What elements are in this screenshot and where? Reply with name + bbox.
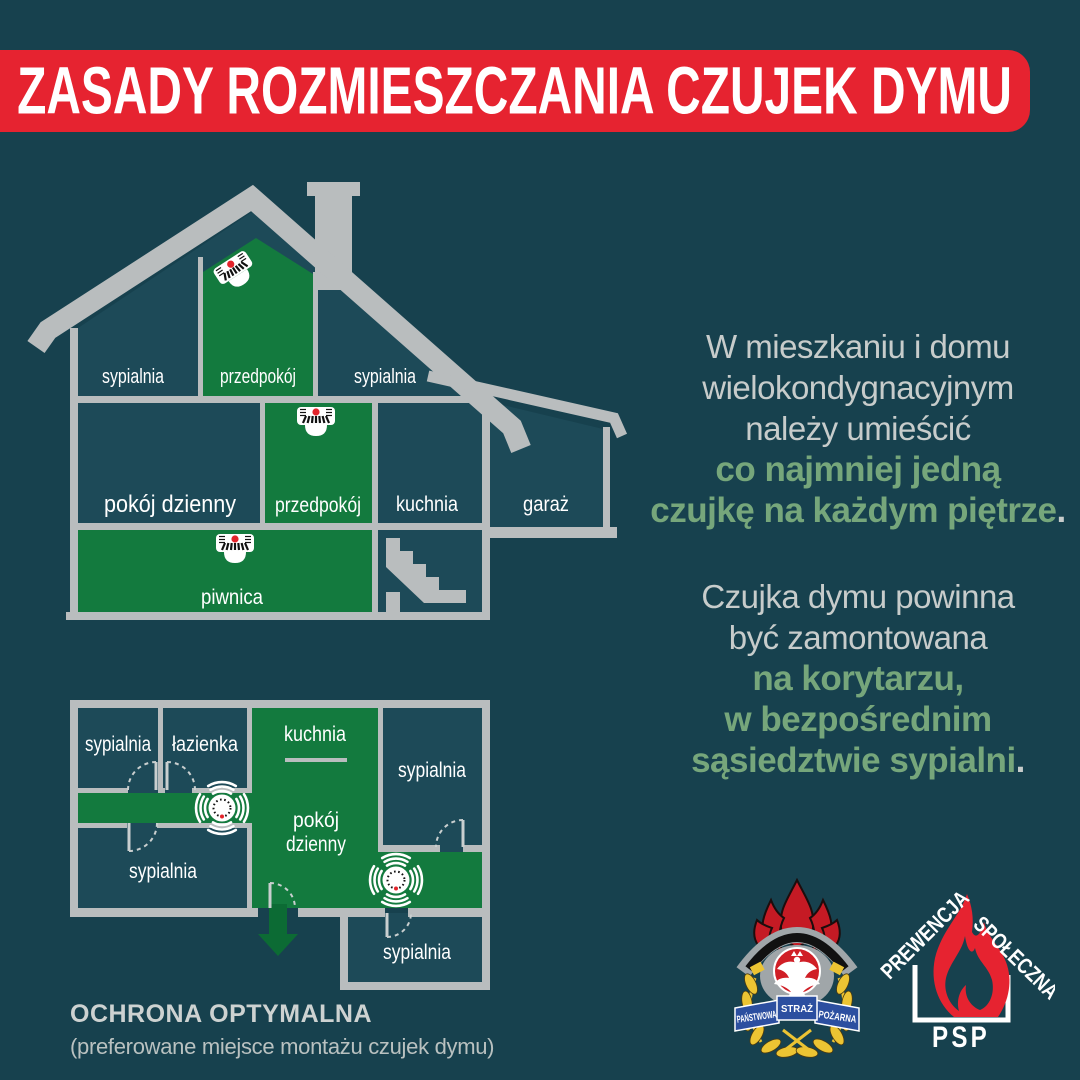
room-label-attic-bedroom-right: sypialnia (354, 366, 417, 388)
info-line-highlight: czujkę na każdym piętrze. (638, 490, 1078, 531)
plan-label-bedroom-top-left: sypialnia (85, 733, 151, 756)
info-line: W mieszkaniu i domu (638, 326, 1078, 367)
info-line: być zamontowana (638, 617, 1078, 658)
info-line-highlight: co najmniej jedną (638, 449, 1078, 490)
room-label-kitchen: kuchnia (396, 493, 458, 516)
room-label-cellar: piwnica (201, 586, 263, 609)
prewencja-spoleczna-logo: PREWENCJA SPOŁECZNA PSP (880, 878, 1055, 1053)
ribbon-word-2: STRAŻ (781, 1002, 813, 1015)
info-line-highlight: sąsiedztwie sypialni. (638, 740, 1078, 781)
crest-ribbon: PAŃSTWOWA STRAŻ POŻARNA (735, 996, 859, 1031)
info-paragraph-2: Czujka dymu powinna być zamontowana na k… (638, 576, 1078, 781)
room-label-attic-hallway: przedpokój (220, 366, 296, 388)
info-text-column: W mieszkaniu i domu wielokondygnacyjnym … (638, 326, 1078, 781)
room-label-ground-hallway: przedpokój (275, 494, 361, 517)
plan-label-bedroom-bottom-right: sypialnia (383, 941, 451, 964)
logo-word-psp: PSP (932, 1021, 990, 1053)
plan-label-kitchen: kuchnia (284, 723, 346, 746)
caption-title: OCHRONA OPTYMALNA (70, 1000, 494, 1029)
caption-subtitle: (preferowane miejsce montażu czujek dymu… (70, 1034, 494, 1060)
info-line: wielokondygnacyjnym (638, 367, 1078, 408)
psp-crest-logo: PAŃSTWOWA STRAŻ POŻARNA (727, 872, 867, 1067)
kitchen-divider (285, 758, 347, 762)
exit-arrow-icon (258, 904, 298, 956)
room-label-attic-bedroom-left: sypialnia (102, 366, 165, 388)
info-line-highlight: na korytarzu, (638, 658, 1078, 699)
info-paragraph-1: W mieszkaniu i domu wielokondygnacyjnym … (638, 326, 1078, 531)
house-cross-section-diagram: sypialnia przedpokój sypialnia pokój dzi… (20, 170, 670, 670)
plan-label-bedroom-top-right: sypialnia (398, 759, 466, 782)
title-banner: ZASADY ROZMIESZCZANIA CZUJEK DYMU (0, 50, 1030, 132)
room-label-living-room: pokój dzienny (104, 491, 236, 518)
room-label-garage: garaż (523, 493, 569, 516)
plan-label-living-room-line2: dzienny (286, 833, 346, 856)
info-line: należy umieścić (638, 408, 1078, 449)
page-title: ZASADY ROZMIESZCZANIA CZUJEK DYMU (18, 53, 1013, 129)
plan-label-bathroom: łazienka (172, 733, 238, 756)
plan-label-living-room-line1: pokój (293, 809, 339, 832)
caption-block: OCHRONA OPTYMALNA (preferowane miejsce m… (70, 1000, 494, 1060)
floor-plan-diagram: sypialnia łazienka kuchnia pokój dzienny… (50, 690, 510, 1000)
infographic-poster: ZASADY ROZMIESZCZANIA CZUJEK DYMU (0, 0, 1080, 1080)
plan-label-bedroom-bottom-left: sypialnia (129, 860, 197, 883)
stairs-base (386, 592, 400, 612)
info-line-highlight: w bezpośrednim (638, 699, 1078, 740)
info-line: Czujka dymu powinna (638, 576, 1078, 617)
